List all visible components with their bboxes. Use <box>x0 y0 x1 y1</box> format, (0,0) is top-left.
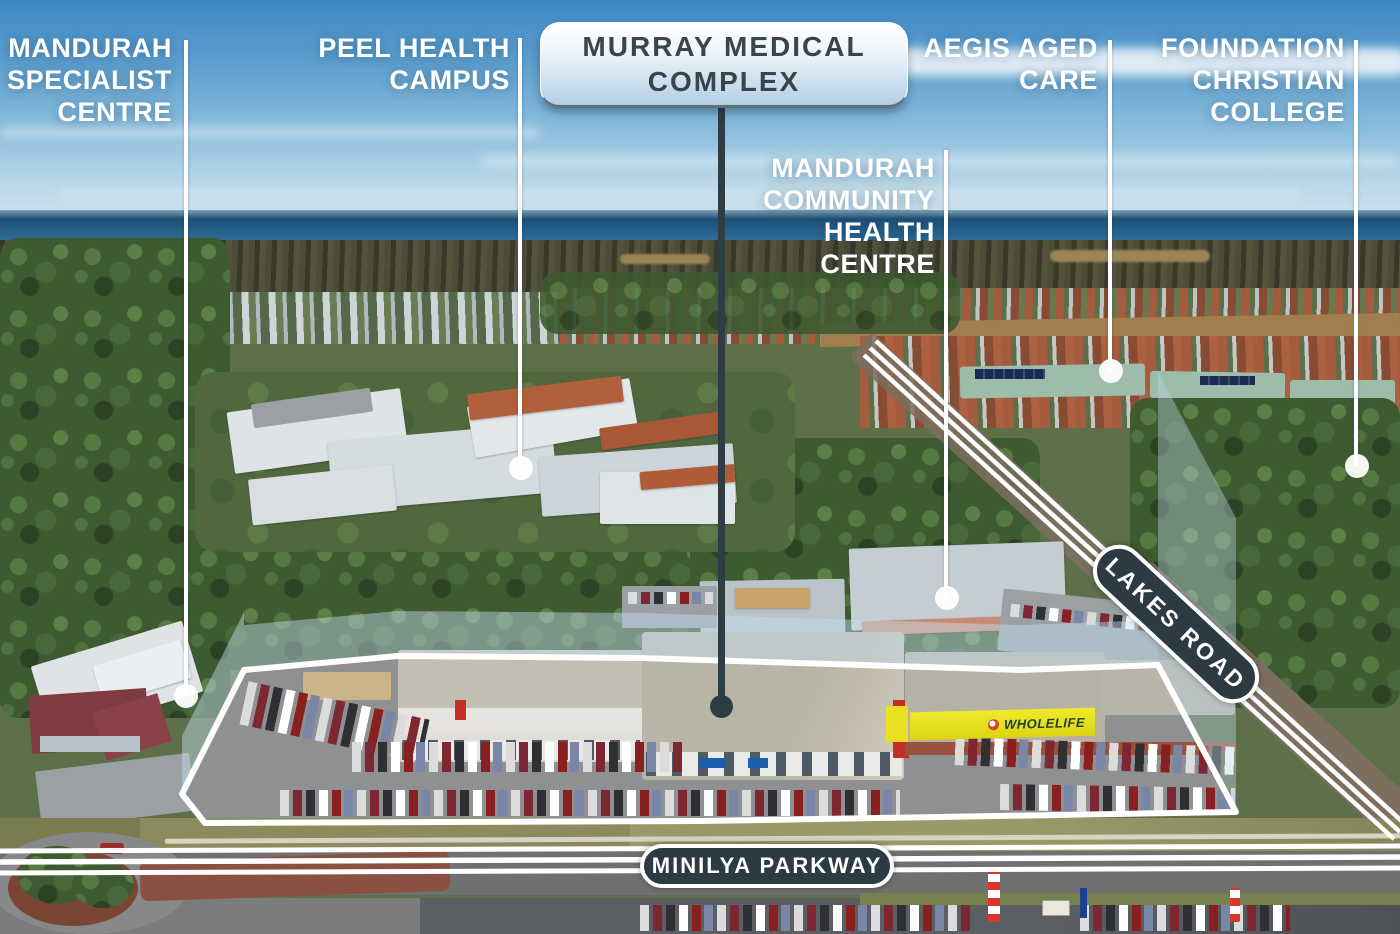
callout-line: MANDURAH <box>0 32 172 64</box>
callout-peel-health-campus: PEEL HEALTH CAMPUS <box>260 32 510 96</box>
leader-dot-specialist <box>174 684 198 708</box>
road-label-text: MINILYA PARKWAY <box>652 853 883 879</box>
leader-dot-aegis <box>1099 359 1123 383</box>
callout-line: PEEL HEALTH <box>260 32 510 64</box>
callout-line: COMMUNITY <box>690 184 935 216</box>
leader-dot-peel <box>509 456 533 480</box>
callout-foundation-christian-college: FOUNDATION CHRISTIAN COLLEGE <box>1100 32 1345 128</box>
property-boundary-outline <box>182 656 1236 823</box>
callout-mandurah-specialist-centre: MANDURAH SPECIALIST CENTRE <box>0 32 172 128</box>
callout-line: MANDURAH <box>690 152 935 184</box>
leader-line-community <box>944 150 948 598</box>
callout-line: AEGIS AGED <box>850 32 1098 64</box>
road-label-minilya-parkway: MINILYA PARKWAY <box>640 844 894 888</box>
callout-line: HEALTH <box>690 216 935 248</box>
leader-dot-community <box>935 586 959 610</box>
callout-line: CENTRE <box>0 96 172 128</box>
callout-mandurah-community-health-centre: MANDURAH COMMUNITY HEALTH CENTRE <box>690 152 935 280</box>
callout-line: CHRISTIAN <box>1100 64 1345 96</box>
callout-line: CAMPUS <box>260 64 510 96</box>
leader-dot-foundation <box>1345 454 1369 478</box>
leader-line-peel <box>518 38 522 468</box>
callout-line: CARE <box>850 64 1098 96</box>
callout-line: COMPLEX <box>648 64 800 99</box>
callout-line: FOUNDATION <box>1100 32 1345 64</box>
callout-aegis-aged-care: AEGIS AGED CARE <box>850 32 1098 96</box>
callout-line: COLLEGE <box>1100 96 1345 128</box>
callout-line: SPECIALIST <box>0 64 172 96</box>
leader-dot-murray <box>710 695 733 718</box>
leader-line-specialist <box>184 40 188 697</box>
leader-line-foundation <box>1354 40 1358 466</box>
callout-line: CENTRE <box>690 248 935 280</box>
callout-line: MURRAY MEDICAL <box>582 29 865 64</box>
annotation-overlay <box>0 0 1400 934</box>
aerial-marketing-image: WHOLELIFE <box>0 0 1400 934</box>
